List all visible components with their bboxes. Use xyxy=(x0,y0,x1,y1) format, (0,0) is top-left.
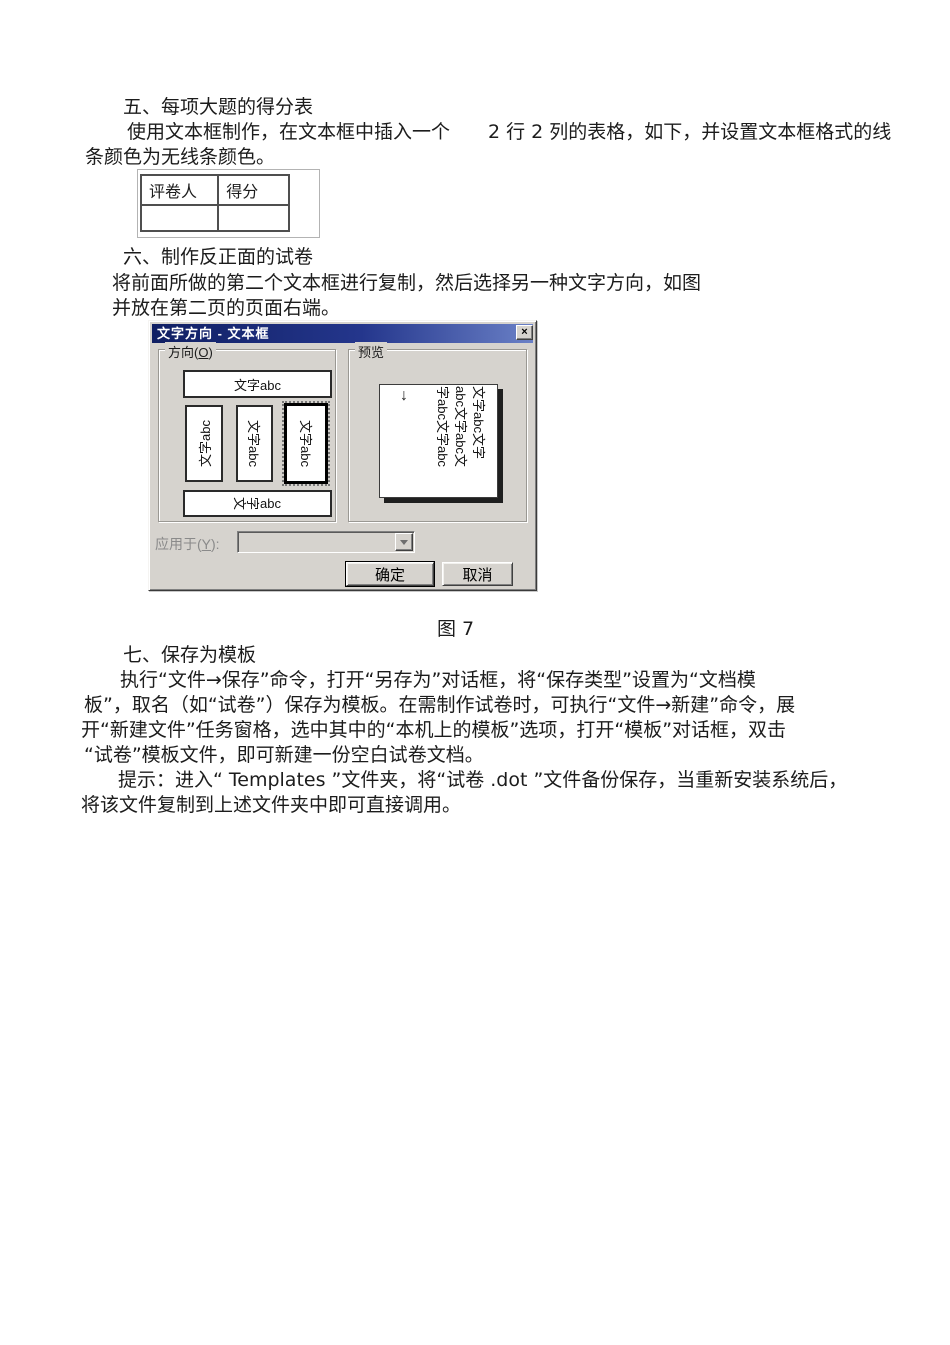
preview-line: 字abc文字abc xyxy=(433,386,451,498)
preview-text: 文字abc文字 abc文字abc文 字abc文字abc xyxy=(433,386,487,498)
section7-tip1: 提示：进入“ Templates ”文件夹，将“试卷 .dot ”文件备份保存，… xyxy=(118,768,847,793)
section7-heading: 七、保存为模板 xyxy=(123,643,256,668)
option-stacked-latin: abc xyxy=(260,496,281,511)
table-header-score: 得分 xyxy=(218,175,289,205)
direction-group-label: 方向(O) xyxy=(165,342,216,361)
section5-line1: 使用文本框制作，在文本框中插入一个 2 行 2 列的表格，如下，并设置文本框格式… xyxy=(127,120,891,145)
option-horizontal-button[interactable]: 文字abc xyxy=(183,370,332,398)
table-row xyxy=(141,205,289,231)
direction-label-post: ) xyxy=(208,345,212,360)
cancel-button[interactable]: 取消 xyxy=(442,562,513,586)
option-horizontal-label: 文字abc xyxy=(234,375,281,394)
text-direction-dialog: 文字方向 - 文本框 × 方向(O) 文字abc 文字abc 文字abc 文字a… xyxy=(148,320,537,591)
table-cell-empty xyxy=(218,205,289,231)
close-button[interactable]: × xyxy=(516,325,533,340)
section7-line1: 执行“文件→保存”命令，打开“另存为”对话框，将“保存类型”设置为“文档模 xyxy=(120,668,756,693)
combo-dropdown-button[interactable] xyxy=(395,533,413,551)
ok-button-label: 确定 xyxy=(375,564,405,585)
direction-groupbox: 方向(O) 文字abc 文字abc 文字abc 文字abc 文字abc xyxy=(158,349,336,522)
apply-label-pre: 应用于( xyxy=(155,536,202,552)
close-icon: × xyxy=(521,326,527,338)
section7-tip2: 将该文件复制到上述文件夹中即可直接调用。 xyxy=(81,793,461,818)
dialog-titlebar[interactable]: 文字方向 - 文本框 xyxy=(152,324,533,343)
preview-line: abc文字abc文 xyxy=(451,386,469,498)
section6-line2: 并放在第二页的页面右端。 xyxy=(112,296,340,321)
preview-group-label: 预览 xyxy=(355,342,387,361)
score-table: 评卷人 得分 xyxy=(140,174,290,232)
table-cell-empty xyxy=(141,205,218,231)
score-textbox-frame: 评卷人 得分 xyxy=(137,169,320,238)
figure-caption: 图 7 xyxy=(437,617,474,642)
dialog-title: 文字方向 - 文本框 xyxy=(157,326,270,341)
preview-card: ↓ 文字abc文字 abc文字abc文 字abc文字abc xyxy=(379,384,498,498)
apply-to-label: 应用于(Y): xyxy=(155,534,220,554)
ok-button[interactable]: 确定 xyxy=(346,562,434,586)
chevron-down-icon xyxy=(400,540,408,545)
section6-heading: 六、制作反正面的试卷 xyxy=(123,245,313,270)
direction-label-accel: O xyxy=(198,345,208,360)
option-stacked-char2: 字 xyxy=(244,497,263,510)
section6-line1: 将前面所做的第二个文本框进行复制，然后选择另一种文字方向，如图 xyxy=(112,271,701,296)
section7-line2: 板”，取名（如“试卷”）保存为模板。在需制作试卷时，可执行“文件→新建”命令，展 xyxy=(84,693,795,718)
section7-line4: “试卷”模板文件，即可新建一份空白试卷文档。 xyxy=(84,743,484,768)
table-row: 评卷人 得分 xyxy=(141,175,289,205)
table-header-grader: 评卷人 xyxy=(141,175,218,205)
apply-label-accel: Y xyxy=(202,536,211,552)
option-vertical-left-label: 文字abc xyxy=(195,420,214,467)
cancel-button-label: 取消 xyxy=(462,564,492,585)
direction-label-pre: 方向( xyxy=(168,345,198,360)
section5-line2: 条颜色为无线条颜色。 xyxy=(85,145,275,170)
option-vertical-right-button[interactable]: 文字abc xyxy=(236,405,273,482)
option-vertical-selected-label: 文字abc xyxy=(297,420,316,467)
apply-to-combobox[interactable] xyxy=(237,531,415,553)
option-vertical-left-button[interactable]: 文字abc xyxy=(185,405,223,482)
preview-groupbox: 预览 ↓ 文字abc文字 abc文字abc文 字abc文字abc xyxy=(348,349,527,522)
down-arrow-icon: ↓ xyxy=(400,387,408,405)
option-vertical-selected-button[interactable]: 文字abc xyxy=(284,403,328,484)
section5-heading: 五、每项大题的得分表 xyxy=(123,95,313,120)
option-vertical-right-label: 文字abc xyxy=(245,420,264,467)
apply-label-post: ): xyxy=(211,536,220,552)
preview-line: 文字abc文字 xyxy=(469,386,487,498)
option-stacked-button[interactable]: 文字abc xyxy=(183,490,332,517)
section7-line3: 开“新建文件”任务窗格，选中其中的“本机上的模板”选项，打开“模板”对话框，双击 xyxy=(81,718,786,743)
